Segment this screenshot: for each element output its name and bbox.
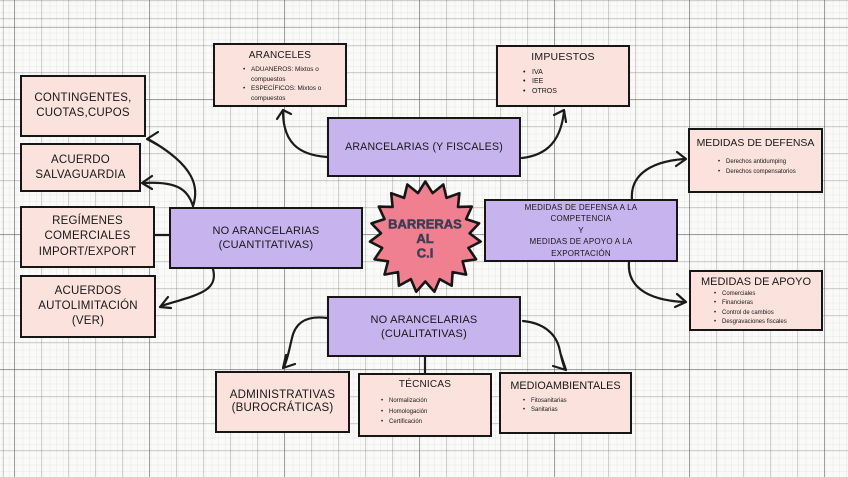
svg-text:C.I: C.I [417, 246, 434, 261]
svg-text:BARRERAS: BARRERAS [388, 217, 462, 232]
svg-text:AL: AL [416, 231, 433, 246]
